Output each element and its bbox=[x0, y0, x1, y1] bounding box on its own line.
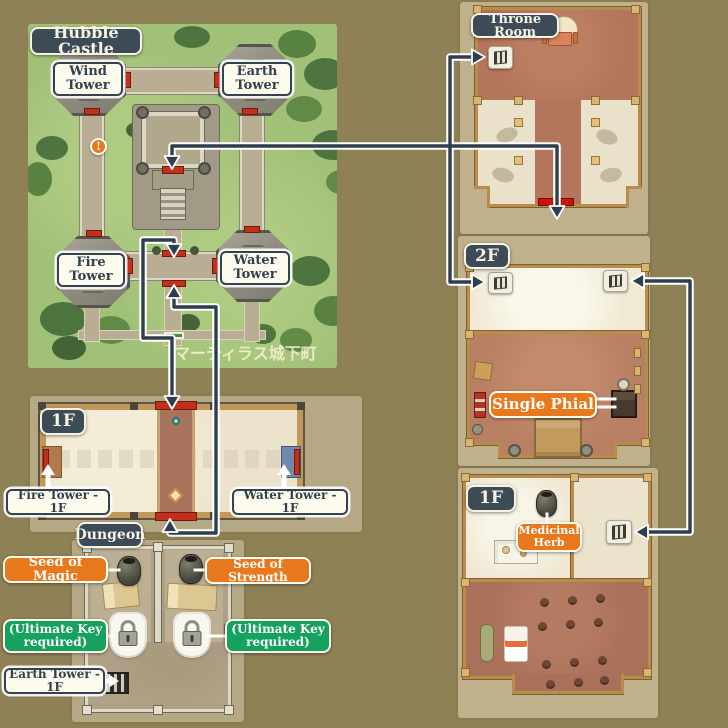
hall-1f-badge: 1F bbox=[40, 408, 86, 435]
water-tower-label-line2: Tower bbox=[233, 268, 276, 282]
seed-of-strength-text: Seed of Strength bbox=[207, 558, 309, 583]
water-tower-exit-text: Water Tower - 1F bbox=[234, 489, 346, 514]
ultimate-key-left-line2: required) bbox=[24, 636, 88, 649]
floor-2f-badge-text: 2F bbox=[475, 248, 499, 265]
seed-of-strength-label: Seed of Strength bbox=[205, 557, 311, 584]
earth-tower-exit-text: Earth Tower - 1F bbox=[6, 668, 103, 693]
water-tower-exit-label: Water Tower - 1F bbox=[232, 489, 348, 515]
earth-tower-label: Earth Tower bbox=[222, 62, 292, 96]
route-arrows-overlay bbox=[0, 0, 728, 728]
earth-tower-label-line2: Tower bbox=[235, 79, 278, 93]
ultimate-key-left-label: (Ultimate Key required) bbox=[3, 619, 108, 653]
wind-tower-label: Wind Tower bbox=[53, 62, 123, 96]
floor-2f-badge: 2F bbox=[464, 243, 510, 269]
ultimate-key-right-label: (Ultimate Key required) bbox=[225, 619, 331, 653]
water-tower-label: Water Tower bbox=[220, 251, 290, 285]
fire-tower-label-line1: Fire bbox=[76, 256, 105, 270]
medicinal-herb-line2: Herb bbox=[534, 537, 565, 549]
throne-room-badge-text: Throne Room bbox=[473, 13, 557, 39]
fire-tower-label: Fire Tower bbox=[57, 253, 125, 287]
throne-room-badge: Throne Room bbox=[471, 13, 559, 38]
earth-tower-label-line1: Earth bbox=[237, 65, 278, 79]
castle-title-text: Hubble Castle bbox=[32, 25, 140, 57]
seed-of-magic-label: Seed of Magic bbox=[3, 556, 108, 583]
water-tower-label-line1: Water bbox=[233, 254, 276, 268]
wind-tower-label-line1: Wind bbox=[69, 65, 107, 79]
floor-1f-right-badge-text: 1F bbox=[479, 490, 503, 507]
floor-1f-right-badge: 1F bbox=[466, 485, 516, 512]
fire-tower-label-line2: Tower bbox=[69, 270, 112, 284]
dungeon-badge: Dungeon bbox=[77, 522, 143, 548]
single-phial-label: Single Phial bbox=[489, 391, 597, 418]
game-guide-screenshot: ! マーティラス城下町 bbox=[0, 0, 728, 728]
castle-title-badge: Hubble Castle bbox=[30, 27, 142, 55]
medicinal-herb-label: Medicinal Herb bbox=[516, 522, 582, 552]
single-phial-text: Single Phial bbox=[492, 397, 594, 413]
ultimate-key-right-line2: required) bbox=[246, 636, 310, 649]
fire-tower-exit-label: Fire Tower - 1F bbox=[6, 489, 110, 515]
hall-1f-badge-text: 1F bbox=[51, 413, 75, 430]
fire-tower-exit-text: Fire Tower - 1F bbox=[8, 489, 108, 514]
seed-of-magic-text: Seed of Magic bbox=[5, 556, 106, 583]
earth-tower-exit-label: Earth Tower - 1F bbox=[4, 668, 105, 694]
dungeon-badge-text: Dungeon bbox=[75, 528, 146, 542]
wind-tower-label-line2: Tower bbox=[66, 79, 109, 93]
